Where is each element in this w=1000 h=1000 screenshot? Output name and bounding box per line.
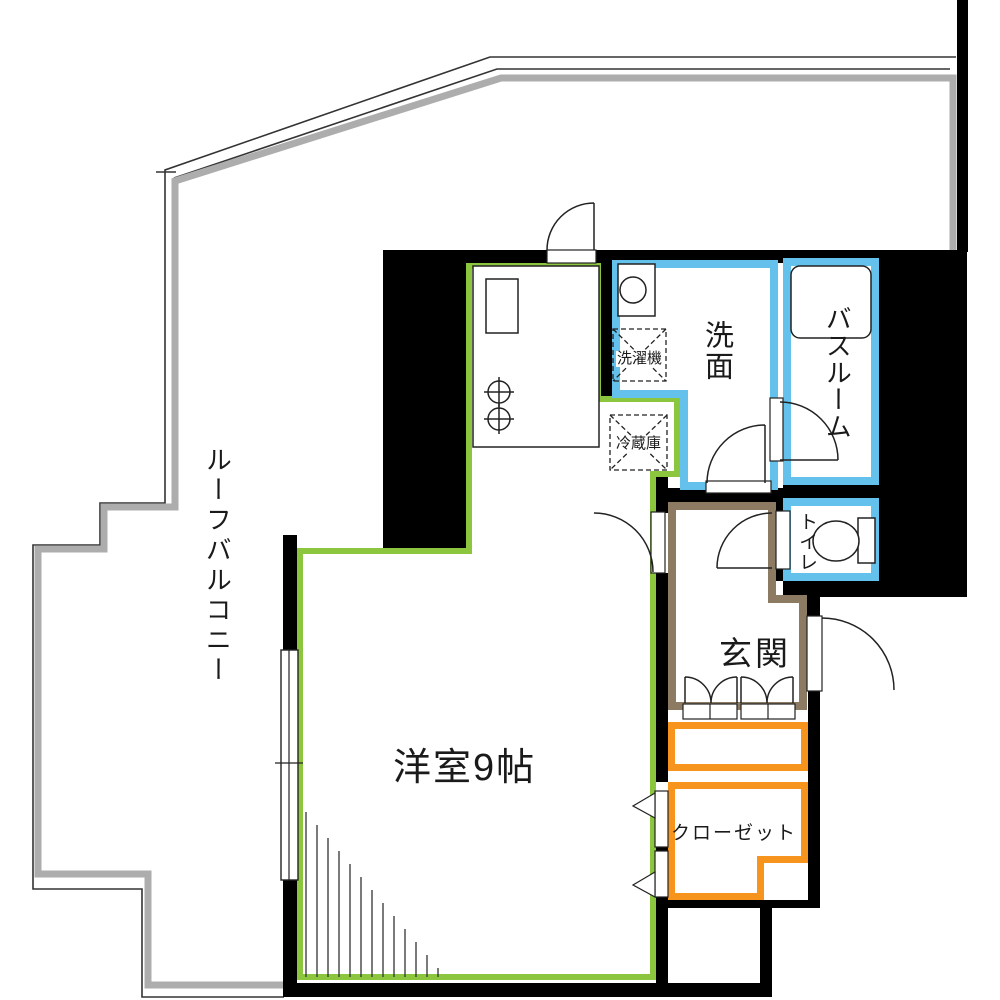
washroom-door-leaf xyxy=(706,481,771,493)
kitchen-door-arc xyxy=(547,203,594,250)
washer-pan-icon xyxy=(618,264,655,316)
label-bathroom: バスルーム xyxy=(823,305,850,440)
label-washing-machine: 洗濯機 xyxy=(616,351,663,367)
closet-door-leaf xyxy=(655,791,668,847)
room-storage-boundary xyxy=(672,726,805,897)
label-washroom: 洗面 xyxy=(701,320,731,382)
kitchen-sink-icon xyxy=(486,279,518,333)
closet-door-leaf xyxy=(655,851,668,897)
floor-plan: ルーフバルコニー 洋室9帖 洗面 バスルーム トイレ 玄関 クローゼット 洗濯機… xyxy=(0,0,1000,1000)
label-closet: クローゼット xyxy=(671,824,797,844)
label-roof-balcony: ルーフバルコニー xyxy=(203,446,230,686)
entrance-door-arc xyxy=(822,618,894,690)
entrance-door-leaf xyxy=(807,616,822,691)
bathroom-door-leaf xyxy=(770,398,783,461)
kitchen-counter xyxy=(473,266,599,447)
label-entrance: 玄関 xyxy=(719,637,791,672)
toilet-icon xyxy=(813,518,875,563)
label-living-room: 洋室9帖 xyxy=(393,749,536,789)
kitchen-door-leaf xyxy=(547,250,596,263)
label-refrigerator: 冷蔵庫 xyxy=(615,436,662,452)
label-toilet: トイレ xyxy=(796,512,816,572)
toilet-door-leaf xyxy=(776,511,790,569)
floor-plan-canvas xyxy=(0,0,1000,1000)
